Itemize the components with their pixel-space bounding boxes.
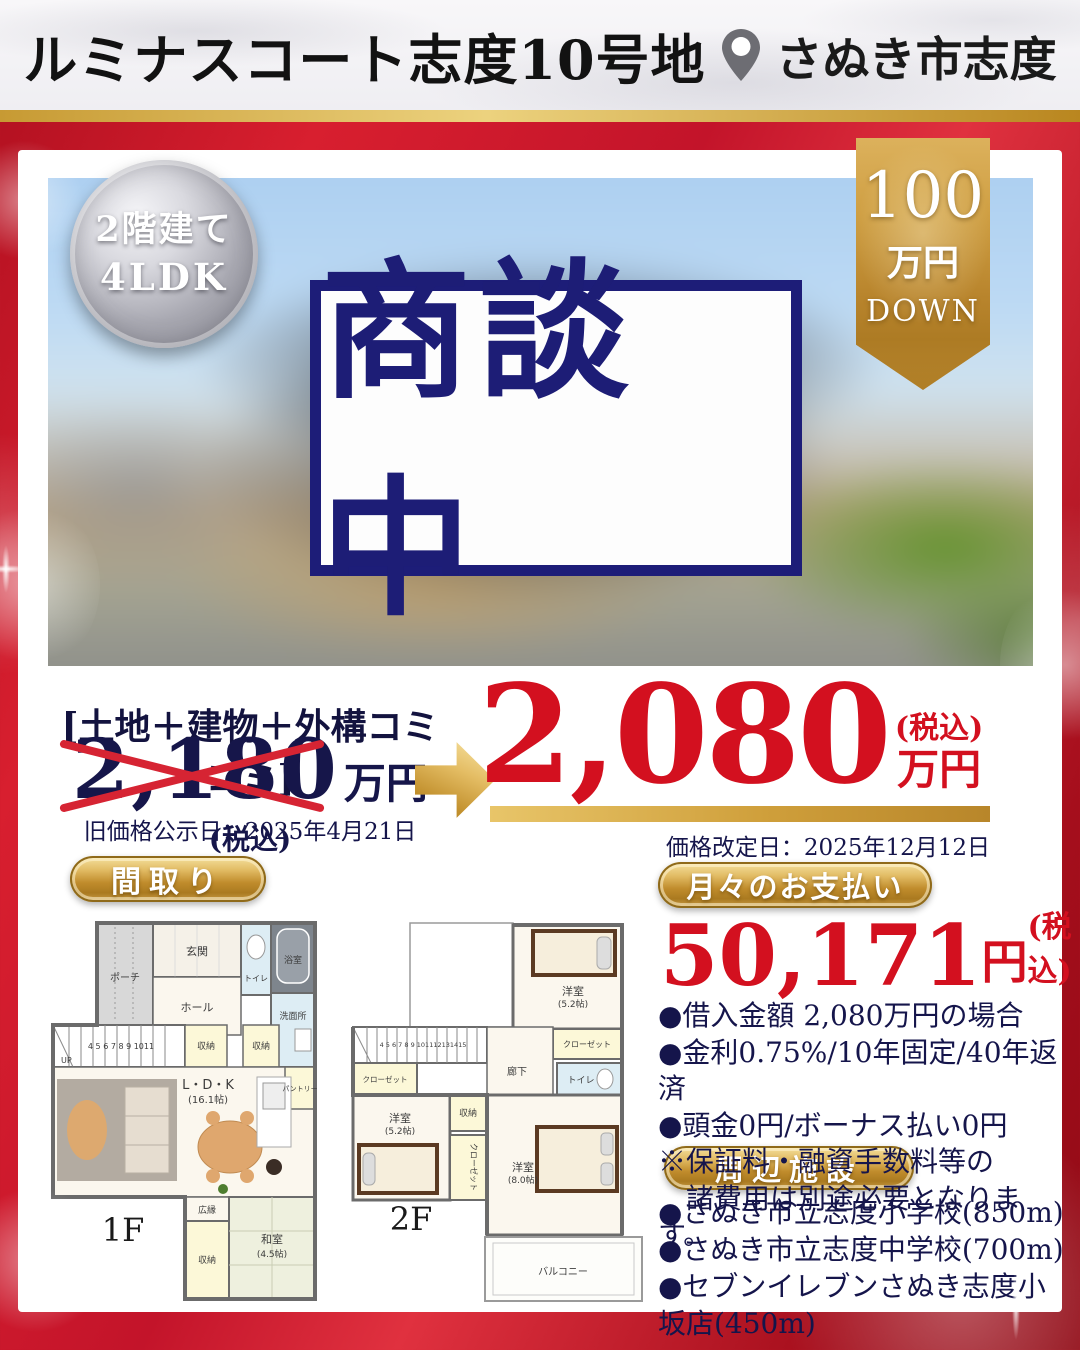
monthly-payment-unit: 円 — [981, 926, 1027, 992]
room-label: ホール — [181, 1001, 214, 1014]
facility-item: ●さぬき市立志度中学校(700m) — [658, 1231, 1068, 1268]
location-text: さぬき市志度 — [776, 21, 1057, 90]
new-price-unit-block: (税込) 万円 — [895, 703, 983, 793]
room-label: バルコニー — [538, 1266, 588, 1278]
ribbon-unit: 万円 — [887, 234, 959, 286]
room-label: (4.5帖) — [257, 1248, 287, 1260]
floorplan-2f: 洋室 (5.2帖) クローゼット 4 5 6 7 8 9 10111213141… — [345, 905, 650, 1325]
gold-divider — [0, 110, 1080, 122]
new-price-date: 価格改定日：2025年12月12日 — [490, 828, 990, 862]
room-label: 洗面所 — [279, 1010, 306, 1022]
room-label: 収納 — [197, 1040, 215, 1052]
new-price-number: 2,080 — [478, 664, 889, 807]
stair-numbers: 4 5 6 7 8 9 101112131415 — [380, 1041, 467, 1049]
page-title: ルミナスコート志度10号地 — [23, 16, 705, 95]
new-price-unit: 万円 — [897, 747, 981, 793]
room-label: (16.1帖) — [188, 1093, 228, 1106]
room-label: (5.2帖) — [558, 998, 588, 1010]
loan-note: ※保証料・融資手数料等の — [658, 1144, 1058, 1181]
spec-badge-line1: 2階建て — [95, 207, 232, 253]
room-label: クローゼット — [469, 1143, 479, 1191]
room-label: 廊下 — [507, 1065, 527, 1078]
room-label: 和室 — [261, 1232, 283, 1246]
stair-numbers: 4 5 6 7 8 9 1011 — [88, 1042, 154, 1051]
monthly-payment: 50,171 円 (税込) — [660, 902, 1080, 1000]
spec-badge-line2: 4LDK — [100, 253, 228, 301]
room-label: 玄関 — [186, 944, 208, 958]
price-underline — [490, 806, 990, 822]
floor-label-1f: 1F — [102, 1211, 145, 1249]
room-label: L・D・K — [182, 1078, 234, 1093]
new-price: 2,080 (税込) 万円 — [478, 664, 983, 807]
loan-note: ●金利0.75%/10年固定/40年返済 — [658, 1035, 1058, 1108]
room-label: クローゼット — [363, 1074, 408, 1084]
monthly-payment-tax: (税込) — [1027, 902, 1080, 990]
status-label: 商談中 — [321, 211, 791, 645]
room-label: 洋室 — [389, 1111, 411, 1125]
room-label: 収納 — [198, 1254, 216, 1266]
old-price-date: 旧価格公示日：2025年4月21日 — [52, 812, 448, 846]
room-label: 広縁 — [198, 1204, 216, 1216]
room-label: 浴室 — [284, 954, 302, 966]
room-label: UP — [61, 1056, 72, 1065]
floorplan-section-badge: 間取り — [70, 856, 266, 902]
floor-label-2f: 2F — [390, 1200, 433, 1238]
loan-note: ●借入金額 2,080万円の場合 — [658, 998, 1058, 1035]
room-label: 洋室 — [562, 984, 584, 998]
room-label: (5.2帖) — [385, 1125, 415, 1137]
room-label: トイレ — [244, 974, 268, 983]
status-box: 商談中 — [310, 280, 802, 576]
price-down-ribbon: 100 万円 DOWN — [856, 138, 990, 390]
monthly-payment-number: 50,171 — [660, 912, 981, 1000]
spec-badge: 2階建て 4LDK — [70, 160, 258, 348]
room-label: トイレ — [567, 1076, 594, 1086]
header: ルミナスコート志度10号地 さぬき市志度 — [0, 0, 1080, 110]
room-label: 洋室 — [512, 1160, 534, 1174]
facility-item: ●さぬき市立志度小学校(850m) — [658, 1194, 1068, 1231]
ribbon-down-text: DOWN — [866, 294, 980, 329]
facility-list: ●さぬき市立志度小学校(850m) ●さぬき市立志度中学校(700m) ●セブン… — [658, 1194, 1068, 1342]
facility-item: ●セブンイレブンさぬき志度小坂店(450m) — [658, 1268, 1068, 1342]
room-label: ポーチ — [110, 972, 140, 984]
room-label: (8.0帖) — [508, 1174, 538, 1186]
room-label: クローゼット — [563, 1039, 611, 1049]
room-label: 収納 — [459, 1107, 477, 1119]
loan-note: ●頭金0円/ボーナス払い0円 — [658, 1108, 1058, 1145]
room-label: パントリー — [282, 1085, 317, 1093]
old-price-struck: 2,180 — [72, 722, 339, 818]
location-pin-icon — [722, 29, 760, 81]
floorplan-1f: ポーチ 玄関 ホール トイレ 浴室 洗面所 収納 収納 パントリー 4 5 6 … — [45, 915, 337, 1307]
room-label: 収納 — [252, 1040, 270, 1052]
new-price-tax: (税込) — [895, 703, 983, 747]
ribbon-amount: 100 — [862, 164, 984, 228]
